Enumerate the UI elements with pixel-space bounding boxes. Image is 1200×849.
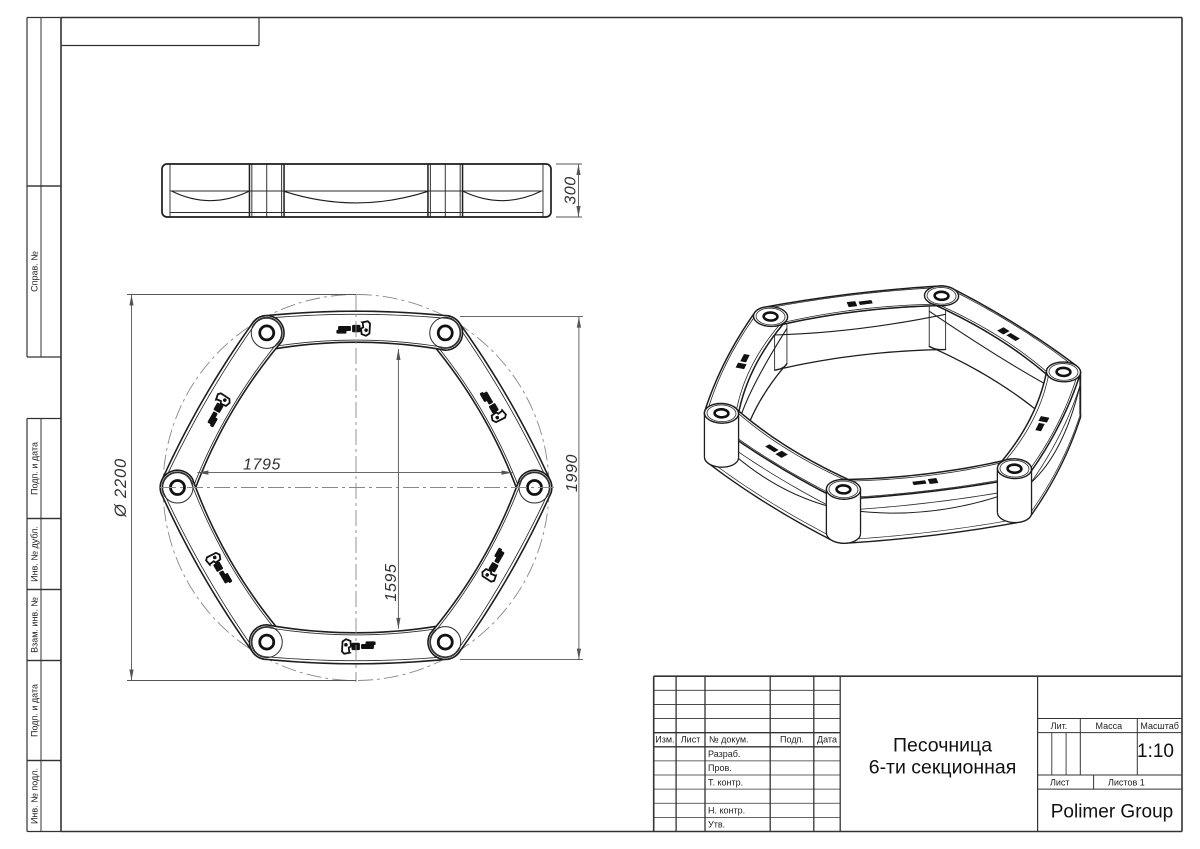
svg-text:Справ. №: Справ. № xyxy=(30,251,40,292)
svg-text:Листов 1: Листов 1 xyxy=(1108,777,1145,787)
svg-text:Пров.: Пров. xyxy=(708,763,732,773)
svg-text:1595: 1595 xyxy=(383,564,400,602)
svg-text:Взам. инв. №: Взам. инв. № xyxy=(30,597,40,653)
svg-text:Подп. и дата: Подп. и дата xyxy=(30,442,40,495)
svg-text:Подп.: Подп. xyxy=(780,735,804,745)
svg-text:300: 300 xyxy=(563,176,580,205)
svg-text:Разраб.: Разраб. xyxy=(708,749,740,759)
svg-text:Polimer Group: Polimer Group xyxy=(1051,802,1174,823)
svg-text:6-ти секционная: 6-ти секционная xyxy=(869,757,1017,779)
svg-text:Подп. и дата: Подп. и дата xyxy=(30,684,40,737)
svg-text:Инв. № дубл.: Инв. № дубл. xyxy=(30,526,40,582)
svg-text:Ø 2200: Ø 2200 xyxy=(112,458,130,518)
svg-text:Масштаб: Масштаб xyxy=(1140,721,1179,731)
svg-text:1:10: 1:10 xyxy=(1137,741,1174,762)
svg-text:№ докум.: № докум. xyxy=(709,735,749,745)
svg-text:1795: 1795 xyxy=(243,457,281,474)
svg-text:Изм.: Изм. xyxy=(655,735,674,745)
svg-text:Н. контр.: Н. контр. xyxy=(708,806,745,816)
svg-text:1990: 1990 xyxy=(564,454,581,492)
svg-text:Лист: Лист xyxy=(1050,777,1070,787)
svg-text:Лист: Лист xyxy=(681,735,701,745)
svg-text:Т. контр.: Т. контр. xyxy=(708,777,743,787)
svg-text:Лит.: Лит. xyxy=(1051,721,1068,731)
svg-text:Дата: Дата xyxy=(817,735,837,745)
svg-text:Инв. № подл.: Инв. № подл. xyxy=(30,768,40,824)
svg-text:Масса: Масса xyxy=(1095,721,1122,731)
svg-text:Песочница: Песочница xyxy=(893,735,992,757)
svg-text:Утв.: Утв. xyxy=(708,820,725,830)
